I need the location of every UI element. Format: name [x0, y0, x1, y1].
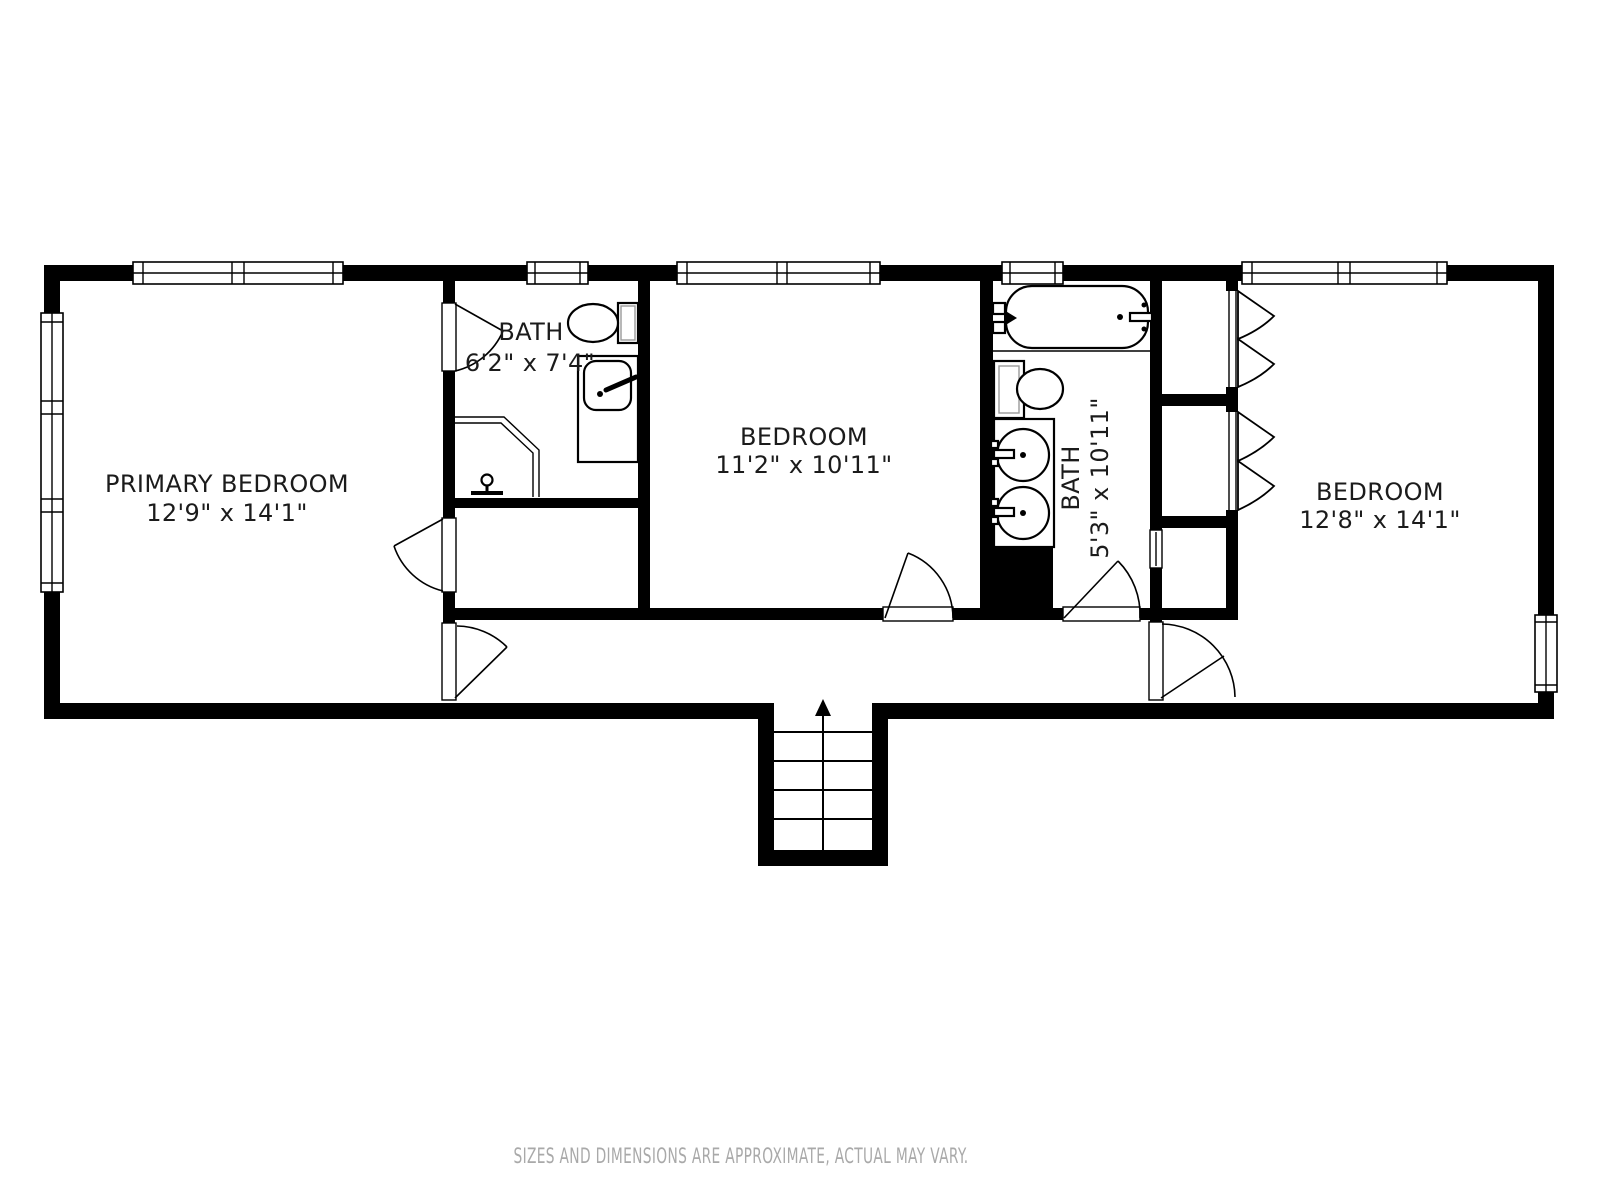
bath2-dimensions: 5'3" x 10'11"	[1086, 397, 1114, 559]
shower-icon	[455, 417, 539, 497]
door-bath2	[1063, 561, 1140, 621]
window-bath1-top	[527, 262, 588, 284]
floorplan-page: PRIMARY BEDROOM 12'9" x 14'1" BATH 6'2" …	[0, 0, 1600, 1200]
window-primary-left	[41, 313, 63, 592]
door-bedroom2	[883, 553, 953, 621]
bath1-dimensions: 6'2" x 7'4"	[465, 349, 595, 377]
window-primary-top	[133, 262, 343, 284]
disclaimer-text: SIZES AND DIMENSIONS ARE APPROXIMATE, AC…	[514, 1144, 969, 1168]
bedroom3-dimensions: 12'8" x 14'1"	[1299, 506, 1461, 534]
window-bedroom2-top	[677, 262, 880, 284]
window-bath2-top	[1002, 262, 1063, 284]
door-closet2-bifold	[1229, 412, 1274, 510]
bath1-label: BATH	[498, 318, 563, 346]
door-primary-hall	[442, 623, 507, 700]
primary-bedroom-dimensions: 12'9" x 14'1"	[146, 499, 308, 527]
primary-bedroom-label: PRIMARY BEDROOM	[105, 470, 349, 498]
bedroom2-dimensions: 11'2" x 10'11"	[715, 451, 892, 479]
bedroom2-label: BEDROOM	[740, 423, 868, 451]
floorplan-canvas: PRIMARY BEDROOM 12'9" x 14'1" BATH 6'2" …	[0, 0, 1600, 1200]
plumbing-chase	[993, 546, 1053, 611]
bedroom3-label: BEDROOM	[1316, 478, 1444, 506]
door-bedroom3	[1149, 622, 1235, 700]
door-closet1-bifold	[1229, 291, 1274, 387]
window-bedroom3-top	[1242, 262, 1447, 284]
door-primary-closet	[394, 518, 456, 592]
bath2-label: BATH	[1057, 445, 1085, 510]
toilet-icon	[994, 361, 1063, 418]
stairs-up-arrow	[815, 699, 831, 716]
staircase	[774, 699, 872, 850]
door-closet3-pocket	[1150, 530, 1162, 568]
window-bedroom3-right	[1535, 615, 1557, 692]
double-vanity-icon	[991, 419, 1054, 547]
toilet-icon	[568, 303, 638, 343]
bathtub-icon	[993, 286, 1152, 351]
